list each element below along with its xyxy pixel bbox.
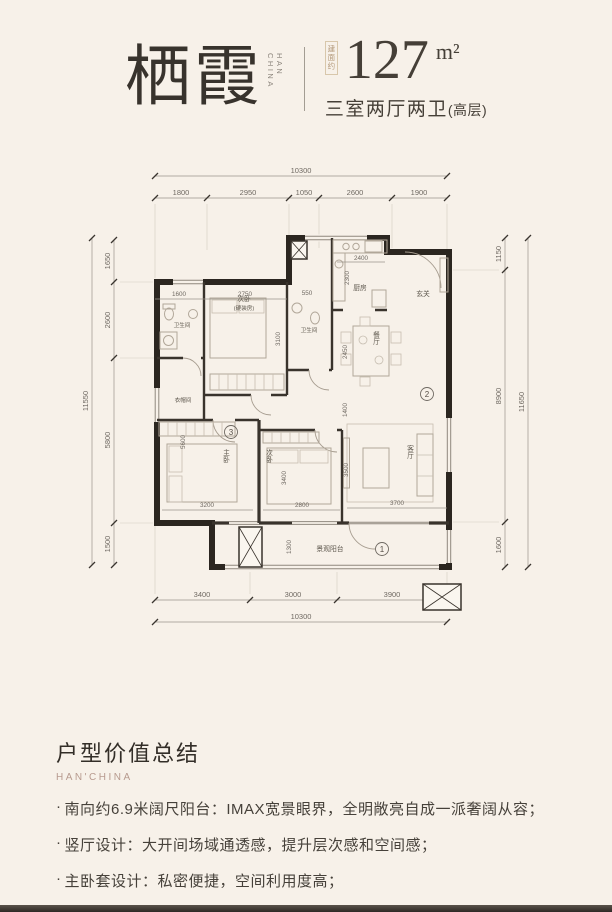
bottom-bar xyxy=(0,905,612,912)
dim-top-total: 10300 xyxy=(291,166,312,175)
marker-dining: 2 xyxy=(425,390,430,399)
dim-dining-h: 2450 xyxy=(342,345,349,360)
summary-brand: HAN'CHINA xyxy=(56,772,576,783)
dim-top-1: 1800 xyxy=(173,188,190,197)
label-balcony: 景观阳台 xyxy=(316,544,343,553)
dim-right-1: 1150 xyxy=(494,246,503,262)
summary-bullets: · 南向约6.9米阔尺阳台：IMAX宽景眼界，全明敞亮自成一派奢阔从容； · 竖… xyxy=(56,798,576,912)
bullet-dot: · xyxy=(56,798,62,819)
dim-top-3: 1050 xyxy=(296,188,313,197)
subtitle-note: (高层) xyxy=(448,102,487,118)
flyer-page: 栖霞 HAN CHINA 建面约 127 m² 三室两厅两卫(高层) xyxy=(0,0,612,912)
label-master: 主卧 xyxy=(222,448,230,463)
dim-master-h: 5600 xyxy=(180,435,187,450)
south-wall xyxy=(212,522,449,525)
label-cloak: 衣帽间 xyxy=(175,396,192,404)
bullet-text: 竖厅设计：大开间场域通透感，提升层次感和空间感； xyxy=(65,834,437,855)
page-title: 栖霞 xyxy=(125,45,263,111)
header: 栖霞 HAN CHINA 建面约 127 m² 三室两厅两卫(高层) xyxy=(0,36,612,121)
area-row: 建面约 127 m² xyxy=(325,36,487,85)
dim-living-h: 3500 xyxy=(343,463,350,478)
dim-balcony-h: 1300 xyxy=(286,540,293,555)
value-summary-section: 户型价值总结 HAN'CHINA · 南向约6.9米阔尺阳台：IMAX宽景眼界，… xyxy=(56,736,576,912)
dim-left-1: 1650 xyxy=(103,253,112,270)
brand-vertical-text: HAN CHINA xyxy=(266,53,284,113)
label-bedroom3-line1: 次卧 xyxy=(237,294,251,303)
area-prefix-badge: 建面约 xyxy=(325,41,338,75)
dim-top-2: 2950 xyxy=(240,188,257,197)
interior-dimensions: 1600 2750 550 2400 2300 3100 2450 1400 3… xyxy=(155,255,447,554)
label-bedroom3-line2: (硬装房) xyxy=(234,304,255,312)
dim-top-5: 1900 xyxy=(411,188,428,197)
label-living: 客厅 xyxy=(406,444,414,459)
label-dining: 餐厅 xyxy=(372,330,380,345)
dim-left-total: 11550 xyxy=(82,391,90,411)
dimensions-top: 10300 1800 2950 1050 2600 1900 xyxy=(152,166,450,201)
dim-bottom-3: 3900 xyxy=(384,590,401,599)
dim-master-w: 3200 xyxy=(200,502,215,509)
bullet-item: · 主卧套设计：私密便捷，空间利用度高； xyxy=(56,870,576,891)
dim-left-2: 2600 xyxy=(103,312,112,329)
dim-bottom-1: 3400 xyxy=(194,590,211,599)
area-value: 127 xyxy=(345,36,429,85)
floorplan-drawing: 10300 1800 2950 1050 2600 1900 3400 3000… xyxy=(82,158,542,636)
dim-hall-h: 1400 xyxy=(342,403,349,418)
area-group: 建面约 127 m² 三室两厅两卫(高层) xyxy=(325,36,487,121)
bullet-item: · 南向约6.9米阔尺阳台：IMAX宽景眼界，全明敞亮自成一派奢阔从容； xyxy=(56,798,576,819)
bullet-item: · 竖厅设计：大开间场域通透感，提升层次感和空间感； xyxy=(56,834,576,855)
dim-bath1-w: 1600 xyxy=(172,291,187,298)
dim-top-4: 2600 xyxy=(347,188,364,197)
dim-living-w: 3700 xyxy=(390,500,405,507)
dim-kitchen-w: 2400 xyxy=(354,255,369,262)
dim-bed2-w: 2800 xyxy=(295,502,310,509)
dim-bottom-total: 10300 xyxy=(291,612,312,621)
header-divider xyxy=(304,47,305,111)
room-labels: 厨房 玄关 餐厅 客厅 景观阳台 主卧 次卧 次卧 (硬装房) 卫生间 卫生间 … xyxy=(174,283,430,553)
bullet-dot: · xyxy=(56,834,62,855)
summary-heading: 户型价值总结 xyxy=(56,736,576,768)
dim-right-2: 8900 xyxy=(494,388,503,405)
area-unit: m² xyxy=(436,39,460,65)
dimensions-left: 11550 1650 2600 5800 1500 xyxy=(82,235,117,568)
dim-kitchen-h: 2300 xyxy=(344,271,351,286)
dim-left-4: 1500 xyxy=(103,536,112,553)
bullet-dot: · xyxy=(56,870,62,891)
title-group: 栖霞 HAN CHINA xyxy=(125,45,284,113)
outer-walls xyxy=(154,235,453,571)
marker-balcony: 1 xyxy=(380,545,385,554)
label-bath1: 卫生间 xyxy=(174,321,191,329)
dim-right-3: 1600 xyxy=(494,537,503,554)
dim-bottom-2: 3000 xyxy=(285,590,302,599)
bullet-text: 南向约6.9米阔尺阳台：IMAX宽景眼界，全明敞亮自成一派奢阔从容； xyxy=(65,798,545,819)
subtitle-main: 三室两厅两卫 xyxy=(325,99,448,120)
label-entry: 玄关 xyxy=(416,289,430,298)
dimensions-right: 1150 8900 1600 11650 xyxy=(494,235,531,570)
label-kitchen: 厨房 xyxy=(353,283,367,292)
marker-master: 3 xyxy=(229,428,234,437)
dim-bed3-h: 3100 xyxy=(275,332,282,347)
label-bath2: 卫生间 xyxy=(301,326,318,334)
dim-right-total: 11650 xyxy=(517,392,526,412)
layout-subtitle: 三室两厅两卫(高层) xyxy=(325,94,487,121)
dim-bath2-w: 550 xyxy=(302,290,313,297)
dim-left-3: 5800 xyxy=(103,432,112,449)
bullet-text: 主卧套设计：私密便捷，空间利用度高； xyxy=(65,870,344,891)
dim-bed2-h: 3400 xyxy=(281,471,288,486)
dimensions-bottom: 3400 3000 3900 10300 xyxy=(152,590,450,625)
